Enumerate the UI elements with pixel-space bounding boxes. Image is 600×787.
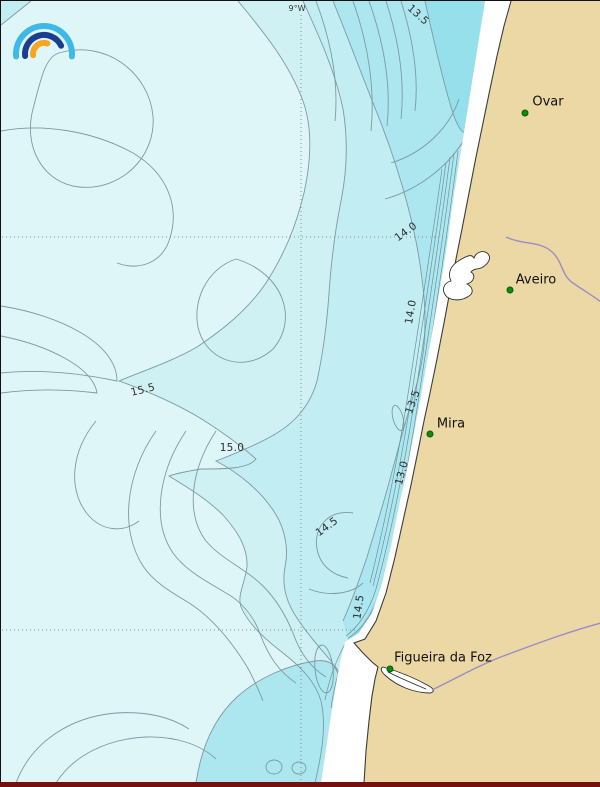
town-dot (387, 666, 394, 673)
contour-value-label: 15.0 (220, 442, 245, 454)
meridian-label: 9°W (289, 4, 306, 13)
town-dot (427, 431, 434, 438)
town-dot (507, 287, 514, 294)
town-label: Aveiro (516, 273, 556, 288)
map-canvas: 9°W OvarAveiroMiraFigueira da Foz13.514.… (0, 0, 600, 787)
colorbar-edge-strip (0, 782, 600, 787)
rainbow-arcs-logo-icon (9, 17, 81, 63)
contour-map-svg (1, 1, 600, 783)
town-dot (522, 110, 529, 117)
town-label: Mira (437, 417, 465, 432)
map-frame: 9°W OvarAveiroMiraFigueira da Foz13.514.… (0, 0, 600, 782)
town-label: Ovar (532, 95, 563, 110)
town-label: Figueira da Foz (394, 651, 492, 666)
